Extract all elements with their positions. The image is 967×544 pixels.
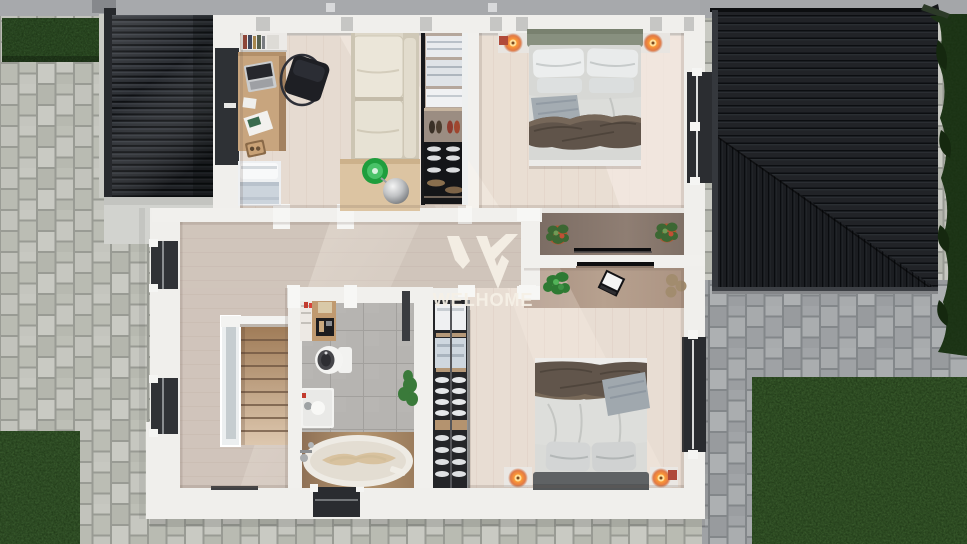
svg-text:WELHOME: WELHOME — [433, 290, 534, 310]
